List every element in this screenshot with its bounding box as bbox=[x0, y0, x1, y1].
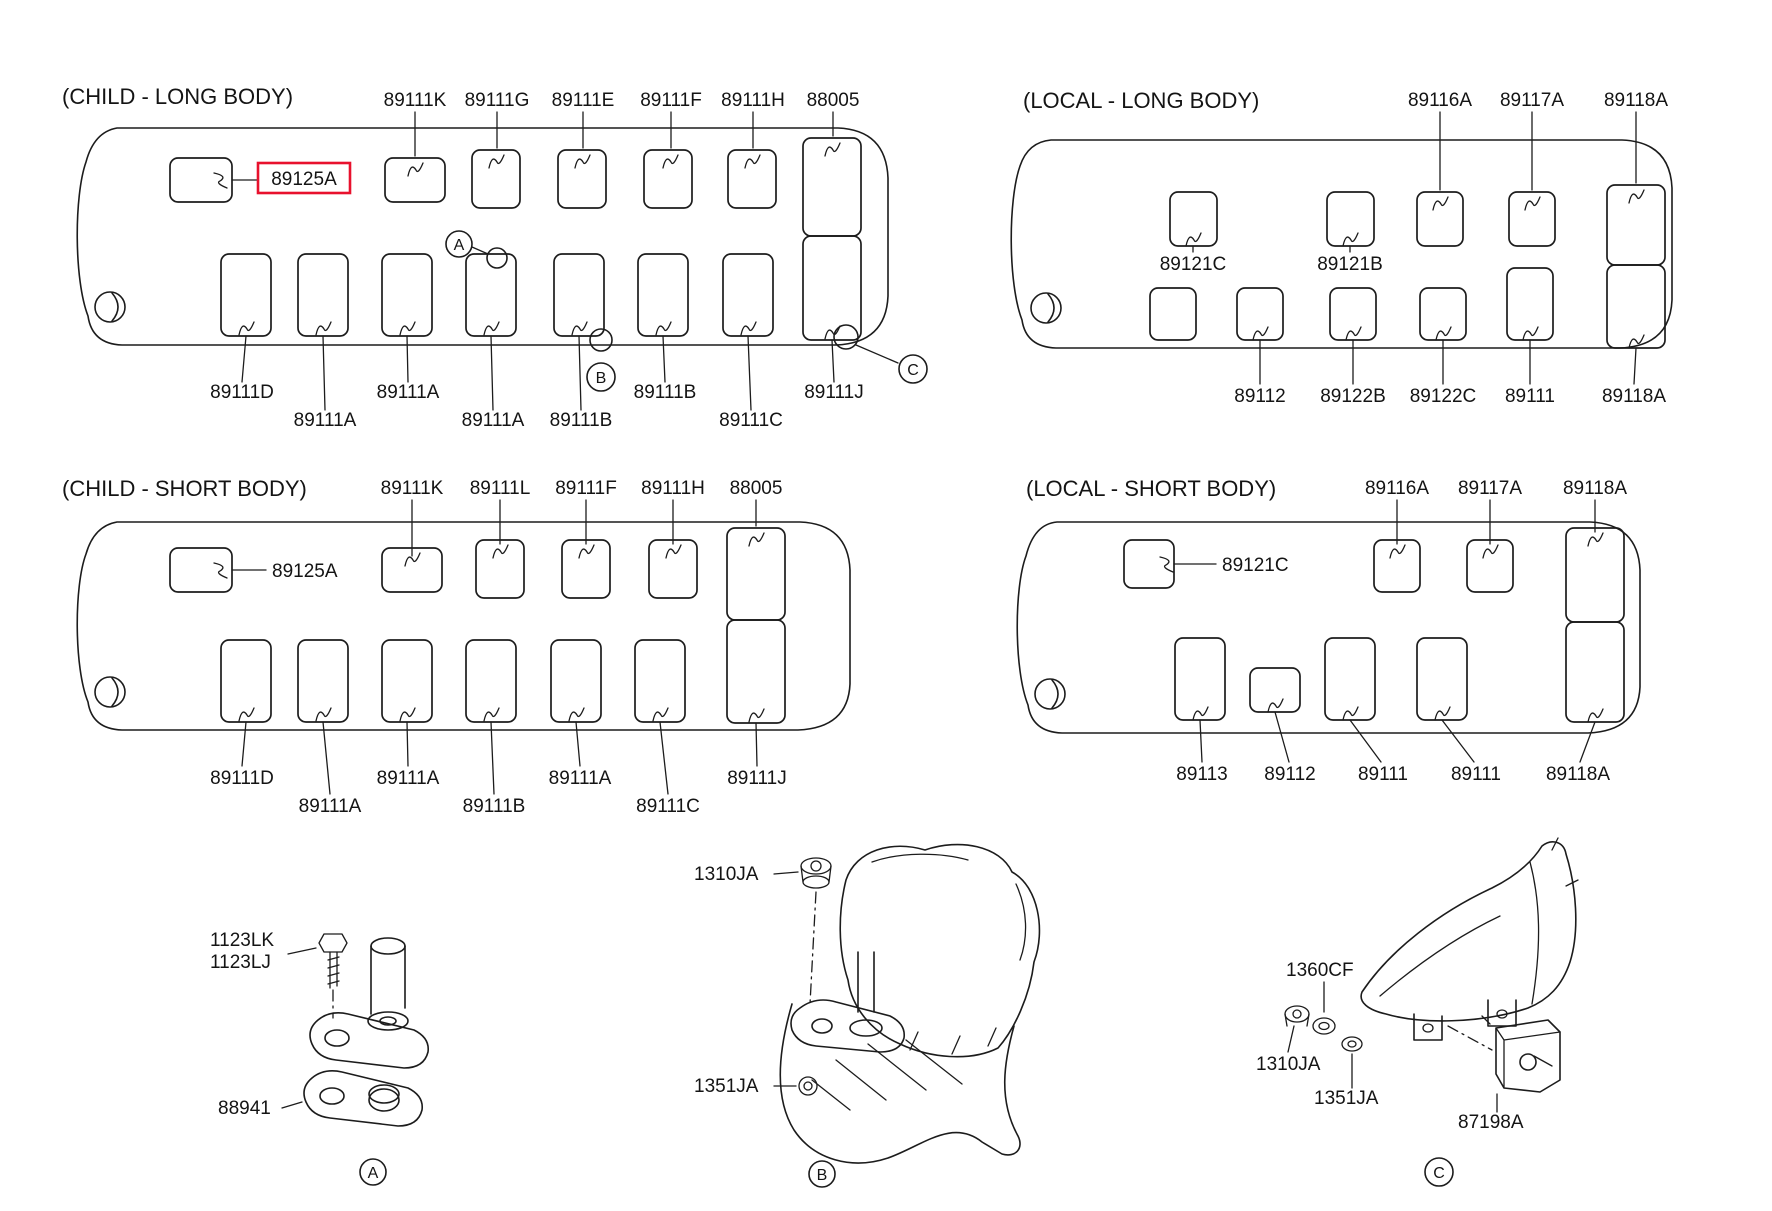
seat-box-89111H[interactable] bbox=[649, 540, 697, 598]
part-label[interactable]: 89111K bbox=[384, 90, 447, 111]
seat-box-89111A[interactable] bbox=[382, 640, 432, 722]
detail-a-anchor-hardware: 1123LK 1123LJ 88941 A bbox=[210, 930, 428, 1185]
leader-lines-bottom bbox=[1200, 712, 1595, 762]
leader-hook bbox=[239, 708, 254, 721]
leader-hook bbox=[663, 155, 678, 168]
nut-icon bbox=[801, 858, 831, 888]
part-label[interactable]: 89121B bbox=[1317, 254, 1383, 275]
seat-box-89125A[interactable] bbox=[170, 158, 232, 202]
seat-box-89111A[interactable] bbox=[551, 640, 601, 722]
seat-box-89111B[interactable] bbox=[466, 640, 516, 722]
anchor-plate bbox=[310, 1012, 428, 1068]
panel-local-long-body: (LOCAL - LONG BODY) 89116A 89117A 89118A… bbox=[1011, 88, 1672, 407]
part-label[interactable]: 89111A bbox=[377, 382, 440, 403]
leader-line bbox=[282, 1102, 302, 1108]
part-label[interactable]: 1310JA bbox=[694, 864, 759, 885]
leader-hook bbox=[1343, 233, 1358, 246]
leader-hook bbox=[1436, 327, 1451, 340]
part-label[interactable]: 89111F bbox=[555, 478, 617, 499]
part-label[interactable]: 1351JA bbox=[694, 1076, 759, 1097]
mount-bracket bbox=[791, 1000, 904, 1052]
leader-lines-top bbox=[1440, 112, 1636, 190]
seat-box-89121B[interactable] bbox=[1327, 192, 1374, 246]
seat-box-89111[interactable] bbox=[1417, 638, 1467, 720]
leader-hook bbox=[1588, 533, 1603, 546]
svg-text:C: C bbox=[1433, 1165, 1445, 1182]
detail-c-bench-seat-mount: 1360CF 1310JA 1351JA 87198A C bbox=[1256, 838, 1578, 1186]
leader-hook bbox=[1435, 707, 1450, 720]
leader-hook bbox=[1433, 197, 1448, 210]
part-label[interactable]: 89111F bbox=[640, 90, 702, 111]
part-label[interactable]: 89111H bbox=[641, 478, 705, 499]
leader-line bbox=[1288, 1026, 1294, 1052]
leader-hook bbox=[1186, 233, 1201, 246]
seat-box-plain[interactable] bbox=[1150, 288, 1196, 340]
leader-lines-top bbox=[415, 112, 833, 156]
part-label[interactable]: 89111H bbox=[721, 90, 785, 111]
part-label-highlighted[interactable]: 89125A bbox=[271, 169, 337, 190]
part-label[interactable]: 89111A bbox=[462, 410, 525, 431]
part-label[interactable]: 89111D bbox=[210, 382, 274, 403]
seat-box-89111L[interactable] bbox=[476, 540, 524, 598]
part-label[interactable]: 1123LJ bbox=[210, 952, 271, 973]
leader-hook bbox=[1343, 707, 1358, 720]
seat-box-89116A[interactable] bbox=[1417, 192, 1463, 246]
seat-box-89111A[interactable] bbox=[382, 254, 432, 336]
leader-hook bbox=[1523, 327, 1538, 340]
part-label[interactable]: 88941 bbox=[218, 1098, 271, 1119]
part-label[interactable]: 89111E bbox=[552, 90, 615, 111]
leader-hook bbox=[484, 708, 499, 721]
steering-wheel-icon bbox=[95, 677, 125, 707]
part-label[interactable]: 89117A bbox=[1458, 478, 1522, 499]
callout-a-circle[interactable]: A bbox=[360, 1159, 386, 1185]
part-label[interactable]: 87198A bbox=[1458, 1112, 1524, 1133]
svg-text:A: A bbox=[368, 1165, 379, 1182]
part-label[interactable]: 89111A bbox=[299, 796, 362, 817]
seat-box-89111[interactable] bbox=[1325, 638, 1375, 720]
leader-hook bbox=[1346, 327, 1361, 340]
link-plate-88941 bbox=[304, 1071, 422, 1126]
leader-line bbox=[472, 247, 488, 254]
panel-title: (LOCAL - SHORT BODY) bbox=[1026, 476, 1276, 501]
leader-hook bbox=[1588, 709, 1603, 722]
leader-hook bbox=[1193, 707, 1208, 720]
leader-lines-bottom bbox=[242, 722, 757, 794]
leader-hook bbox=[1525, 197, 1540, 210]
leader-hook bbox=[741, 322, 756, 335]
seat-box-88005-upper[interactable] bbox=[727, 528, 785, 620]
part-label[interactable]: 89111 bbox=[1505, 386, 1555, 407]
part-label[interactable]: 89118A bbox=[1602, 386, 1666, 407]
seat-box-88005-lower[interactable] bbox=[727, 620, 785, 723]
seat-box-89118A-upper[interactable] bbox=[1607, 185, 1665, 265]
seat-box-89111D[interactable] bbox=[221, 640, 271, 722]
panel-title: (CHILD - SHORT BODY) bbox=[62, 476, 307, 501]
leader-hook bbox=[493, 545, 508, 558]
leader-line bbox=[288, 948, 316, 954]
part-label[interactable]: 89111C bbox=[719, 410, 783, 431]
leader-lines-bottom bbox=[1260, 340, 1636, 384]
seat-box-89111B[interactable] bbox=[554, 254, 604, 336]
leader-hook bbox=[484, 322, 499, 335]
seat-box-88005-upper[interactable] bbox=[803, 138, 861, 236]
seat-box-89121C[interactable] bbox=[1170, 192, 1217, 246]
seat-box-89116A[interactable] bbox=[1374, 540, 1420, 592]
seat-box-89111A[interactable] bbox=[298, 254, 348, 336]
seat-box-89111C[interactable] bbox=[635, 640, 685, 722]
part-label[interactable]: 1360CF bbox=[1286, 960, 1354, 981]
leader-hook bbox=[1390, 545, 1405, 558]
part-label[interactable]: 89112 bbox=[1264, 764, 1315, 785]
leader-hook bbox=[1629, 190, 1644, 203]
seat-box-89111E[interactable] bbox=[558, 150, 606, 208]
part-label[interactable]: 89111A bbox=[294, 410, 357, 431]
seat-box-89111A[interactable] bbox=[298, 640, 348, 722]
steering-wheel-icon bbox=[95, 292, 125, 322]
leader-hook bbox=[408, 163, 423, 176]
leader-hook bbox=[1268, 699, 1283, 712]
seat-box-89111[interactable] bbox=[1507, 268, 1553, 340]
seat-box-89125A[interactable] bbox=[170, 548, 232, 592]
leader-line bbox=[774, 872, 798, 874]
seat-parts-diagram: (CHILD - LONG BODY) 89111K 89111G 89111E… bbox=[0, 0, 1772, 1211]
bracket-87198A bbox=[1482, 1016, 1560, 1092]
seat-box-89111K[interactable] bbox=[385, 158, 445, 202]
leader-hook bbox=[656, 322, 671, 335]
part-label[interactable]: 1123LK bbox=[210, 930, 274, 951]
svg-text:B: B bbox=[596, 370, 607, 387]
steering-wheel-icon bbox=[1035, 679, 1065, 709]
leader-hook bbox=[666, 545, 681, 558]
washer-icon bbox=[799, 1077, 817, 1095]
leader-hook bbox=[1253, 327, 1268, 340]
leader-hook bbox=[489, 155, 504, 168]
svg-text:C: C bbox=[907, 362, 919, 379]
leader-hook bbox=[400, 708, 415, 721]
part-label[interactable]: 89122C bbox=[1410, 386, 1477, 407]
seat-box-89118A-upper[interactable] bbox=[1566, 528, 1624, 622]
part-label[interactable]: 89111G bbox=[465, 90, 530, 111]
part-label[interactable]: 89118A bbox=[1546, 764, 1610, 785]
part-label[interactable]: 89125A bbox=[272, 561, 338, 582]
leader-hook bbox=[749, 533, 764, 546]
nut-icon bbox=[1285, 1006, 1309, 1026]
collar-washer-icon bbox=[1313, 1018, 1335, 1034]
part-label[interactable]: 89118A bbox=[1604, 90, 1668, 111]
part-label[interactable]: 1310JA bbox=[1256, 1054, 1321, 1075]
callout-c-target bbox=[834, 325, 858, 349]
seat-box-89111D[interactable] bbox=[221, 254, 271, 336]
seat-box-89118A-lower[interactable] bbox=[1566, 622, 1624, 722]
part-label[interactable]: 89116A bbox=[1365, 478, 1429, 499]
bus-outline bbox=[1011, 140, 1672, 348]
part-label[interactable]: 89117A bbox=[1500, 90, 1564, 111]
seat-box-89117A[interactable] bbox=[1467, 540, 1513, 592]
part-label[interactable]: 89111B bbox=[463, 796, 526, 817]
part-label[interactable]: 89111B bbox=[550, 410, 613, 431]
part-label[interactable]: 89111K bbox=[381, 478, 444, 499]
callout-b-target bbox=[590, 329, 612, 351]
seat-box-89117A[interactable] bbox=[1509, 192, 1555, 246]
assembly-axis-line bbox=[810, 892, 816, 1004]
svg-text:B: B bbox=[817, 1167, 828, 1184]
part-label[interactable]: 89111L bbox=[470, 478, 531, 499]
leader-hook bbox=[214, 173, 227, 188]
leader-hook bbox=[745, 155, 760, 168]
seat-box-89111C[interactable] bbox=[723, 254, 773, 336]
panel-child-short-body: (CHILD - SHORT BODY) 89111K 89111L 89111… bbox=[62, 476, 850, 817]
bench-seat-shape bbox=[1361, 838, 1578, 1040]
leader-hook bbox=[575, 155, 590, 168]
part-label[interactable]: 89112 bbox=[1234, 386, 1285, 407]
callout-c-circle[interactable]: C bbox=[1425, 1158, 1453, 1186]
panel-local-short-body: (LOCAL - SHORT BODY) 89116A 89117A 89118… bbox=[1017, 476, 1640, 785]
seat-box-89111H[interactable] bbox=[728, 150, 776, 208]
callout-c-marker[interactable]: C bbox=[899, 355, 927, 383]
part-label[interactable]: 89111J bbox=[804, 382, 864, 403]
part-label[interactable]: 88005 bbox=[730, 478, 783, 499]
part-label[interactable]: 89118A bbox=[1563, 478, 1627, 499]
seat-box-89111B[interactable] bbox=[638, 254, 688, 336]
callout-b-marker[interactable]: B bbox=[587, 363, 615, 391]
panel-child-long-body: (CHILD - LONG BODY) 89111K 89111G 89111E… bbox=[62, 84, 927, 431]
part-label[interactable]: 89111 bbox=[1358, 764, 1408, 785]
leader-hook bbox=[825, 143, 840, 156]
seat-box-89111G[interactable] bbox=[472, 150, 520, 208]
steering-wheel-icon bbox=[1031, 293, 1061, 323]
leader-hook bbox=[1483, 545, 1498, 558]
part-label[interactable]: 89111 bbox=[1451, 764, 1501, 785]
leader-hook bbox=[400, 322, 415, 335]
svg-text:A: A bbox=[454, 237, 465, 254]
part-label[interactable]: 89122B bbox=[1320, 386, 1386, 407]
part-label[interactable]: 89121C bbox=[1222, 555, 1289, 576]
part-label[interactable]: 1351JA bbox=[1314, 1088, 1379, 1109]
leader-hook bbox=[316, 322, 331, 335]
leader-hook bbox=[569, 708, 584, 721]
seat-box-89113[interactable] bbox=[1175, 638, 1225, 720]
detail-b-seat-mount: 1310JA 1351JA B bbox=[694, 845, 1039, 1187]
part-label[interactable]: 88005 bbox=[807, 90, 860, 111]
bus-outline bbox=[77, 522, 850, 730]
part-label[interactable]: 89121C bbox=[1160, 254, 1227, 275]
bolt-icon bbox=[319, 934, 347, 988]
part-label[interactable]: 89111J bbox=[727, 768, 787, 789]
bus-outline bbox=[77, 128, 888, 345]
leader-hook bbox=[214, 563, 227, 578]
leader-hook bbox=[239, 322, 254, 335]
seat-box-88005-lower[interactable] bbox=[803, 236, 861, 340]
washer-icon bbox=[1342, 1037, 1362, 1051]
callout-b-circle[interactable]: B bbox=[809, 1161, 835, 1187]
part-label[interactable]: 89111A bbox=[549, 768, 612, 789]
bus-outline bbox=[1017, 522, 1640, 733]
assembly-axis-line bbox=[1448, 1026, 1492, 1050]
mount-post bbox=[858, 952, 874, 1012]
part-label[interactable]: 89113 bbox=[1176, 764, 1227, 785]
leader-lines-bottom bbox=[242, 336, 834, 410]
leader-lines-top bbox=[412, 500, 756, 556]
leader-lines-mid bbox=[1193, 246, 1350, 252]
panel-title: (CHILD - LONG BODY) bbox=[62, 84, 293, 109]
part-label[interactable]: 89111A bbox=[377, 768, 440, 789]
parts-diagram-page: (CHILD - LONG BODY) 89111K 89111G 89111E… bbox=[0, 0, 1772, 1211]
part-label[interactable]: 89111D bbox=[210, 768, 274, 789]
callout-a-target bbox=[487, 248, 507, 268]
callout-a-marker[interactable]: A bbox=[446, 231, 472, 257]
leader-hook bbox=[579, 545, 594, 558]
panel-title: (LOCAL - LONG BODY) bbox=[1023, 88, 1259, 113]
part-label[interactable]: 89116A bbox=[1408, 90, 1472, 111]
leader-line bbox=[856, 345, 898, 363]
leader-hook bbox=[316, 708, 331, 721]
leader-hook bbox=[572, 322, 587, 335]
leader-hook bbox=[653, 708, 668, 721]
seat-box-89111F[interactable] bbox=[562, 540, 610, 598]
anchor-post bbox=[371, 938, 405, 1014]
seat-back-shape bbox=[840, 845, 1039, 1057]
part-label[interactable]: 89111B bbox=[634, 382, 697, 403]
leader-hook bbox=[1160, 557, 1173, 572]
leader-hook bbox=[749, 709, 764, 722]
part-label[interactable]: 89111C bbox=[636, 796, 700, 817]
